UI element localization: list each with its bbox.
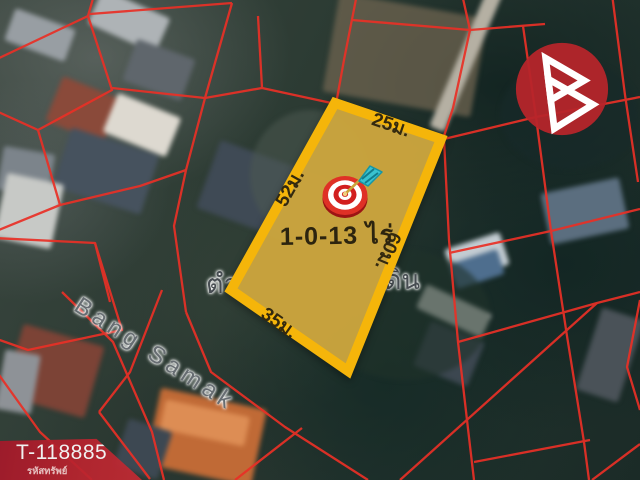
building-roof [576,307,640,402]
building-roof [122,39,195,102]
property-code-caption: รหัสทรัพย์ [27,464,67,479]
building-roof [0,349,41,414]
listing-map-screenshot: Bang Samak ตำ ดิน 25ม. 52ม. 60ม. 35ม. 1-… [0,0,640,480]
target-icon [312,158,392,222]
building-roof [0,173,64,250]
plot-area-label: 1-0-13 ไร่ [280,215,395,257]
brand-logo-icon [514,41,610,137]
place-label-fragment: ตำ [206,262,239,305]
building-roof [540,177,629,244]
building-roof [4,8,76,62]
brand-logo [514,41,610,137]
property-code: T-118885 [16,441,107,465]
